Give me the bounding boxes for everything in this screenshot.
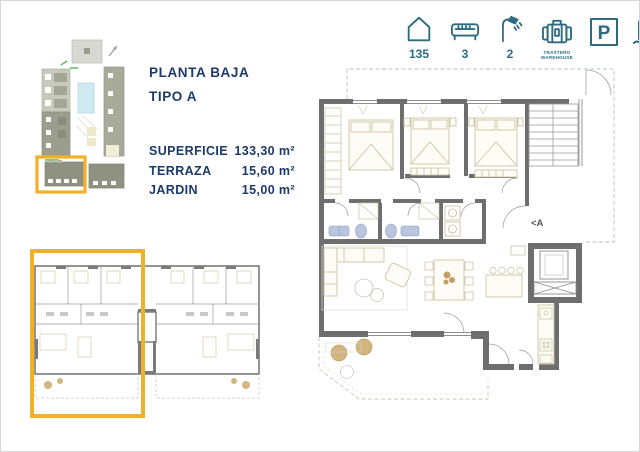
bedroom-3-bed (469, 118, 523, 177)
spec-label: SUPERFICIE (149, 144, 228, 158)
bed-icon (448, 14, 482, 44)
spec-value: 133,30 m² (234, 144, 295, 158)
spec-row-terraza: TERRAZA 15,60 m² (149, 164, 295, 178)
terrace-inner-dashed (324, 341, 484, 394)
amenity-units: 135 (403, 14, 435, 61)
garden-gate-door-arc (586, 70, 611, 95)
laundry-appliances (445, 206, 460, 236)
site-plan (34, 17, 126, 199)
section-marker-label: <A (531, 218, 544, 229)
pool-icon (632, 17, 640, 47)
shower-icon (495, 14, 525, 44)
area-specs: SUPERFICIE 133,30 m² TERRAZA 15,60 m² JA… (149, 144, 295, 203)
key-plan-terraces (35, 374, 259, 398)
spec-value: 15,60 m² (242, 164, 295, 178)
staircase (529, 104, 578, 166)
amenity-pool (632, 17, 640, 47)
bedroom-2-bed (404, 118, 456, 175)
amenity-bedrooms: 3 (448, 14, 482, 61)
amenities-bar: 135 3 2 (403, 14, 640, 61)
bedroom-1-bed (349, 120, 393, 170)
kitchen-counter (538, 305, 554, 364)
plan-level-title: PLANTA BAJA (149, 65, 249, 80)
parking-icon: P (589, 17, 619, 47)
wardrobe (325, 108, 341, 194)
elevator (534, 251, 576, 294)
amenity-storage: TRASTERO WAREHOUSE (538, 17, 576, 61)
north-arrow-icon (109, 46, 117, 56)
site-building-right (104, 67, 124, 156)
key-plan-outline (35, 266, 259, 374)
main-floorplan: <A (301, 56, 640, 446)
spec-value: 15,00 m² (242, 183, 295, 197)
dining-furniture (425, 260, 473, 300)
key-plan-plants (44, 378, 250, 389)
key-plan (26, 249, 266, 419)
house-icon (403, 14, 435, 44)
site-pool (78, 83, 94, 113)
amenity-parking: P (589, 17, 619, 47)
amenity-bathrooms: 2 (495, 14, 525, 61)
storage-suitcase-icon (538, 17, 576, 47)
terrace-boundary-dashed (319, 337, 488, 399)
spec-label: JARDIN (149, 183, 198, 197)
svg-text:P: P (598, 23, 611, 44)
hall-console (511, 246, 525, 255)
spec-label: TERRAZA (149, 164, 212, 178)
plan-type-title: TIPO A (149, 89, 197, 104)
spec-row-superficie: SUPERFICIE 133,30 m² (149, 144, 295, 158)
island-counter (486, 267, 523, 297)
living-room-furniture (322, 246, 412, 310)
brochure-page: PLANTA BAJA TIPO A SUPERFICIE 133,30 m² … (0, 0, 640, 452)
spec-row-jardin: JARDIN 15,00 m² (149, 183, 295, 197)
